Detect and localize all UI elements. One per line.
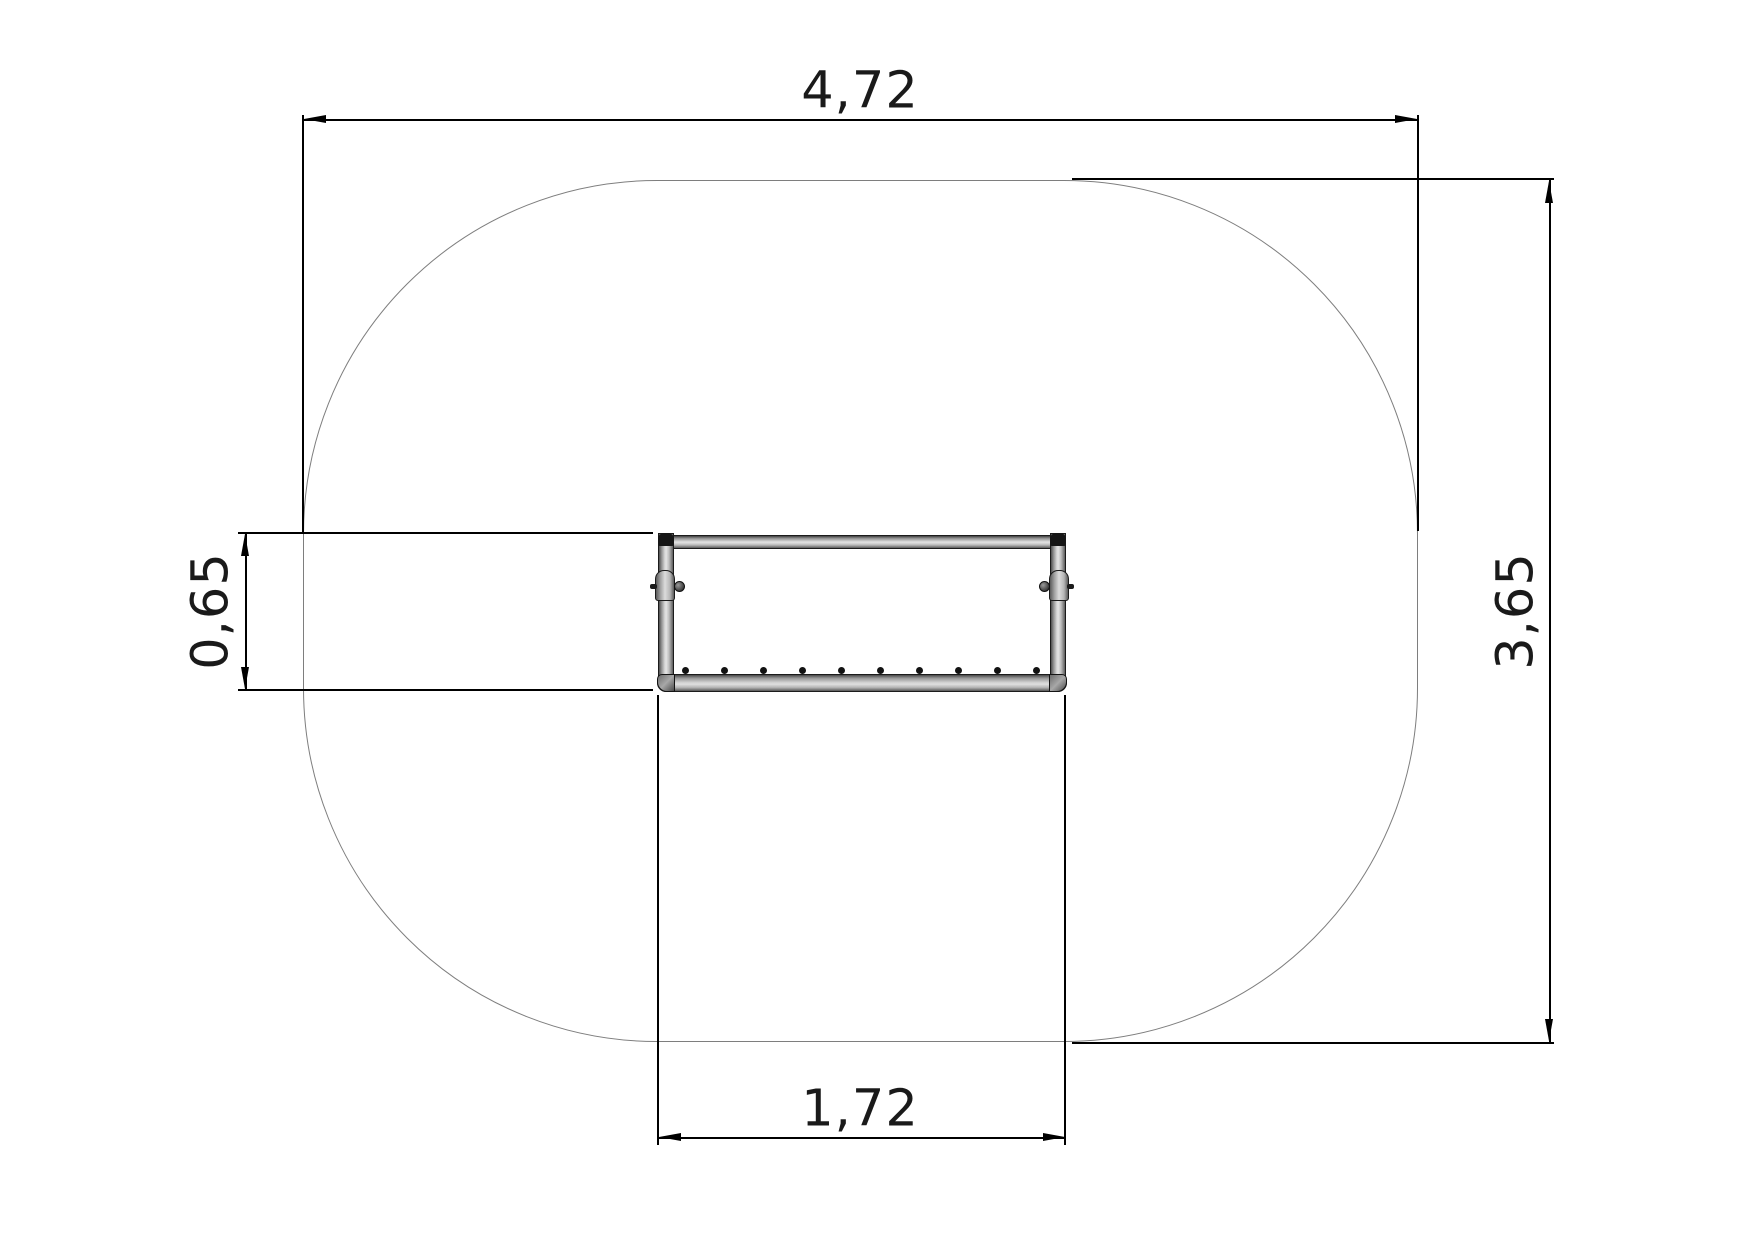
bench-top-view <box>657 533 1067 693</box>
bench-left-clamp-screw <box>674 581 685 592</box>
bench-right-post <box>1050 533 1066 679</box>
bench-seat-bolt <box>799 667 806 674</box>
bench-left-post-cap <box>658 533 674 546</box>
extension-line <box>238 532 653 534</box>
overall-width-label: 4,72 <box>801 66 919 117</box>
bench-backrest-tube <box>672 535 1052 549</box>
dimension-arrow-right <box>1395 115 1417 123</box>
dimension-arrow-right <box>1043 1133 1065 1141</box>
bench-seat-bolt <box>955 667 962 674</box>
extension-line <box>238 689 653 691</box>
bench-right-post-cap <box>1050 533 1066 546</box>
extension-line <box>1064 695 1066 1145</box>
bench-seat-bolt <box>682 667 689 674</box>
bench-left-clamp-screw-tip <box>650 584 657 589</box>
technical-drawing-canvas: 4,72 3,65 0,65 1,72 <box>0 0 1753 1240</box>
extension-line <box>1072 1042 1554 1044</box>
dimension-arrow-up <box>1545 181 1553 203</box>
bench-seat-bolt <box>1033 667 1040 674</box>
equipment-depth-label: 0,65 <box>186 552 237 670</box>
dimension-arrow-down <box>241 667 249 689</box>
bench-seat-bolt <box>760 667 767 674</box>
extension-line <box>1072 178 1554 180</box>
extension-line <box>302 115 304 534</box>
dimension-arrow-up <box>241 534 249 556</box>
bench-right-clamp <box>1049 570 1069 601</box>
bench-seat-bolt <box>877 667 884 674</box>
dimension-arrow-down <box>1545 1019 1553 1041</box>
dimension-arrow-left <box>304 115 326 123</box>
bench-seat-bolt <box>721 667 728 674</box>
dimension-arrow-left <box>659 1133 681 1141</box>
bench-left-clamp <box>655 570 675 601</box>
bench-seat-tube <box>657 674 1067 692</box>
overall-height-label: 3,65 <box>1491 552 1542 670</box>
bench-right-clamp-screw-tip <box>1067 584 1074 589</box>
extension-line <box>657 695 659 1145</box>
dimension-line <box>1549 180 1551 1042</box>
bench-right-clamp-screw <box>1039 581 1050 592</box>
bench-left-post <box>658 533 674 679</box>
bench-seat-bolt <box>916 667 923 674</box>
bench-seat-bolt <box>838 667 845 674</box>
equipment-width-label: 1,72 <box>801 1084 919 1135</box>
bench-seat-tube-left-cap <box>657 674 675 692</box>
bench-seat-bolt <box>994 667 1001 674</box>
